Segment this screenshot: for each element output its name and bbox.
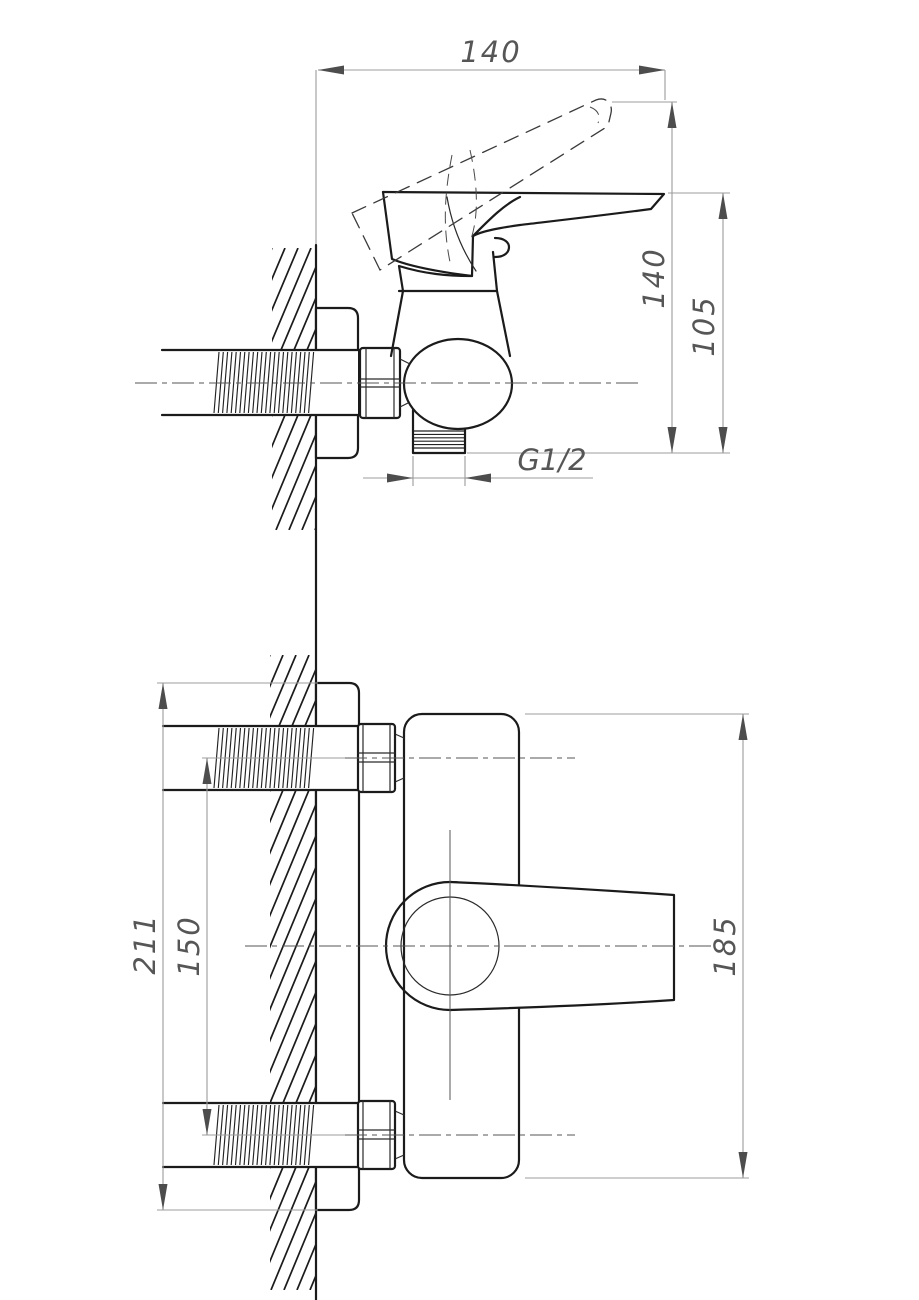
- dim-label-105: 105: [687, 295, 721, 356]
- dim-lift-height-140: 140: [637, 102, 677, 453]
- dim-label-185: 185: [708, 915, 742, 976]
- dim-label-width-140: 140: [460, 35, 521, 69]
- dim-label-g12: G1/2: [517, 443, 586, 477]
- dim-outlet-thread: G1/2: [363, 443, 593, 483]
- lever-closed: [383, 192, 664, 276]
- dim-body-height-105: 105: [687, 193, 728, 453]
- dim-label-211: 211: [128, 913, 162, 974]
- mixer-cap-side: [399, 252, 497, 291]
- drawing-canvas: 140 140 105 G1/2 211 150 1: [0, 0, 919, 1300]
- side-view: [135, 99, 664, 458]
- valve-body-side: [404, 339, 512, 429]
- dim-body-185: 185: [708, 714, 748, 1178]
- dim-label-lift-140: 140: [637, 247, 671, 308]
- dim-width-140: 140: [318, 35, 665, 75]
- dim-label-150: 150: [172, 915, 206, 976]
- dim-overall-211: 211: [128, 683, 168, 1210]
- dim-spacing-150: 150: [172, 758, 212, 1135]
- front-view: [163, 683, 714, 1210]
- technical-drawing: 140 140 105 G1/2 211 150 1: [0, 0, 919, 1300]
